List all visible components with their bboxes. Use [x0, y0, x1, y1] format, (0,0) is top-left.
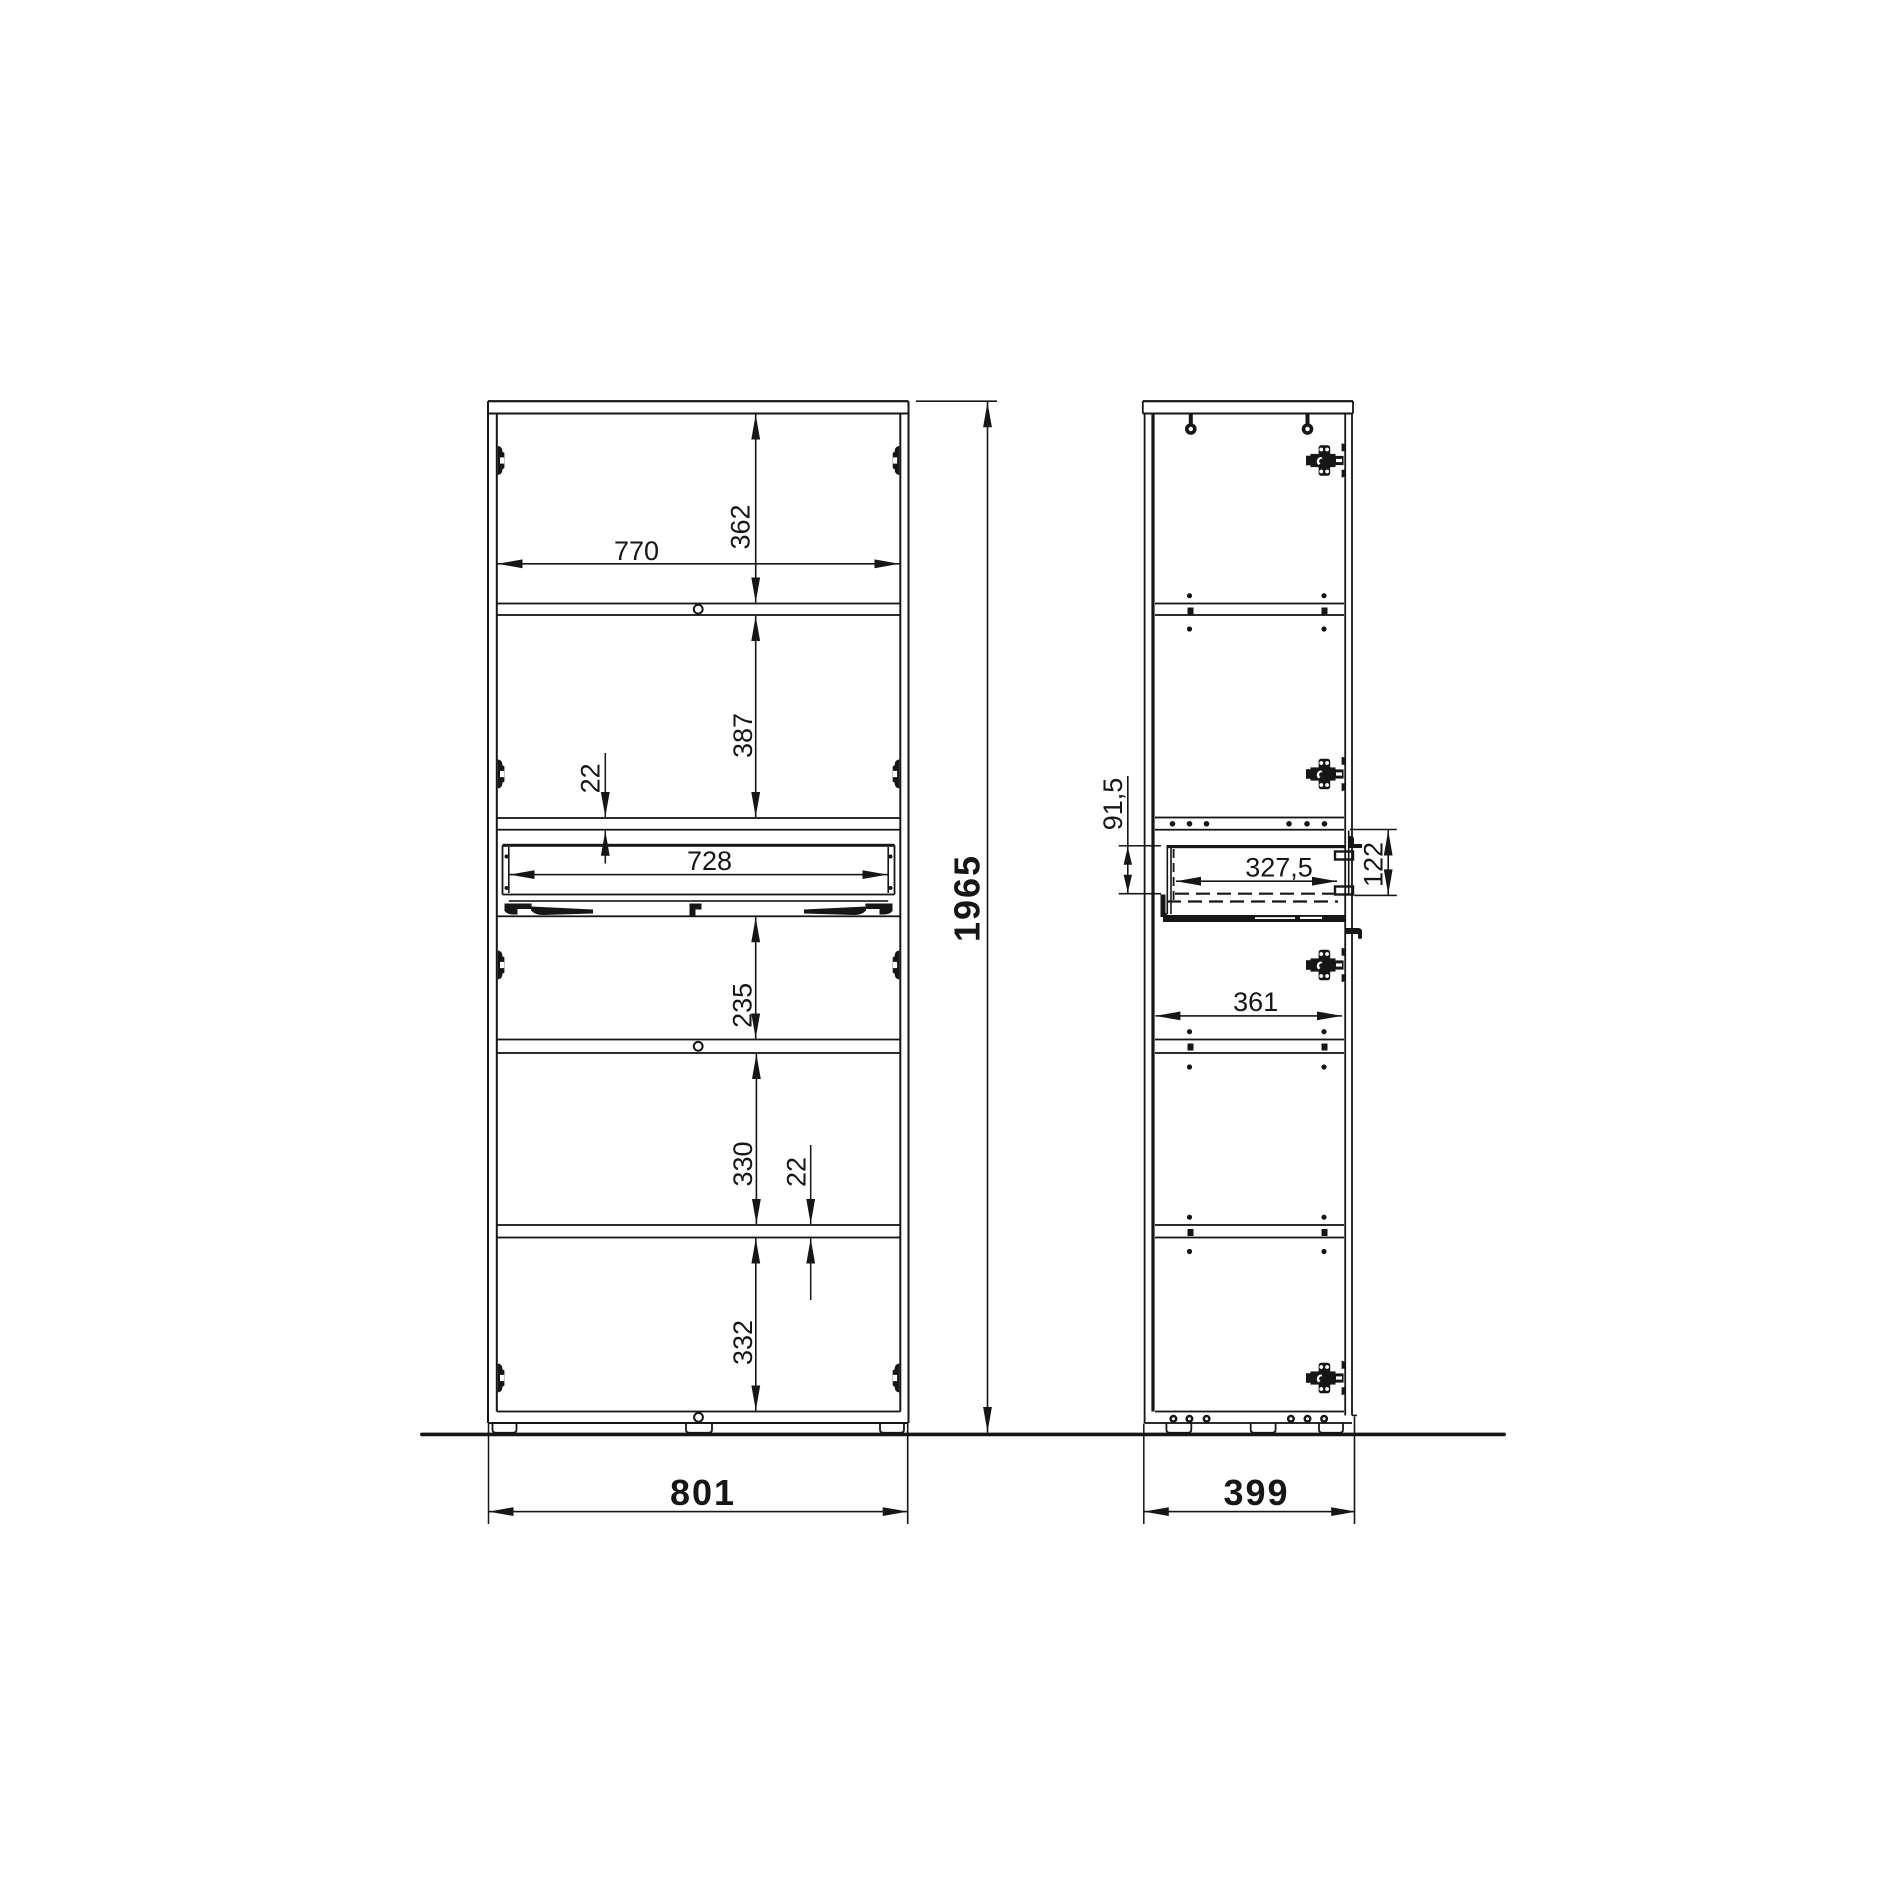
svg-text:122: 122	[1359, 842, 1389, 887]
svg-text:1965: 1965	[947, 854, 988, 942]
svg-text:22: 22	[576, 763, 606, 793]
svg-text:361: 361	[1233, 987, 1278, 1017]
svg-text:801: 801	[670, 1472, 736, 1513]
svg-text:362: 362	[726, 504, 756, 549]
svg-text:332: 332	[728, 1320, 758, 1365]
svg-text:330: 330	[728, 1141, 758, 1186]
svg-text:728: 728	[687, 846, 732, 876]
svg-text:91,5: 91,5	[1098, 778, 1128, 831]
svg-text:327,5: 327,5	[1245, 853, 1313, 883]
svg-text:770: 770	[614, 536, 659, 566]
svg-text:387: 387	[728, 713, 758, 758]
svg-text:235: 235	[728, 983, 758, 1028]
svg-text:22: 22	[782, 1157, 812, 1187]
svg-text:399: 399	[1223, 1472, 1289, 1513]
